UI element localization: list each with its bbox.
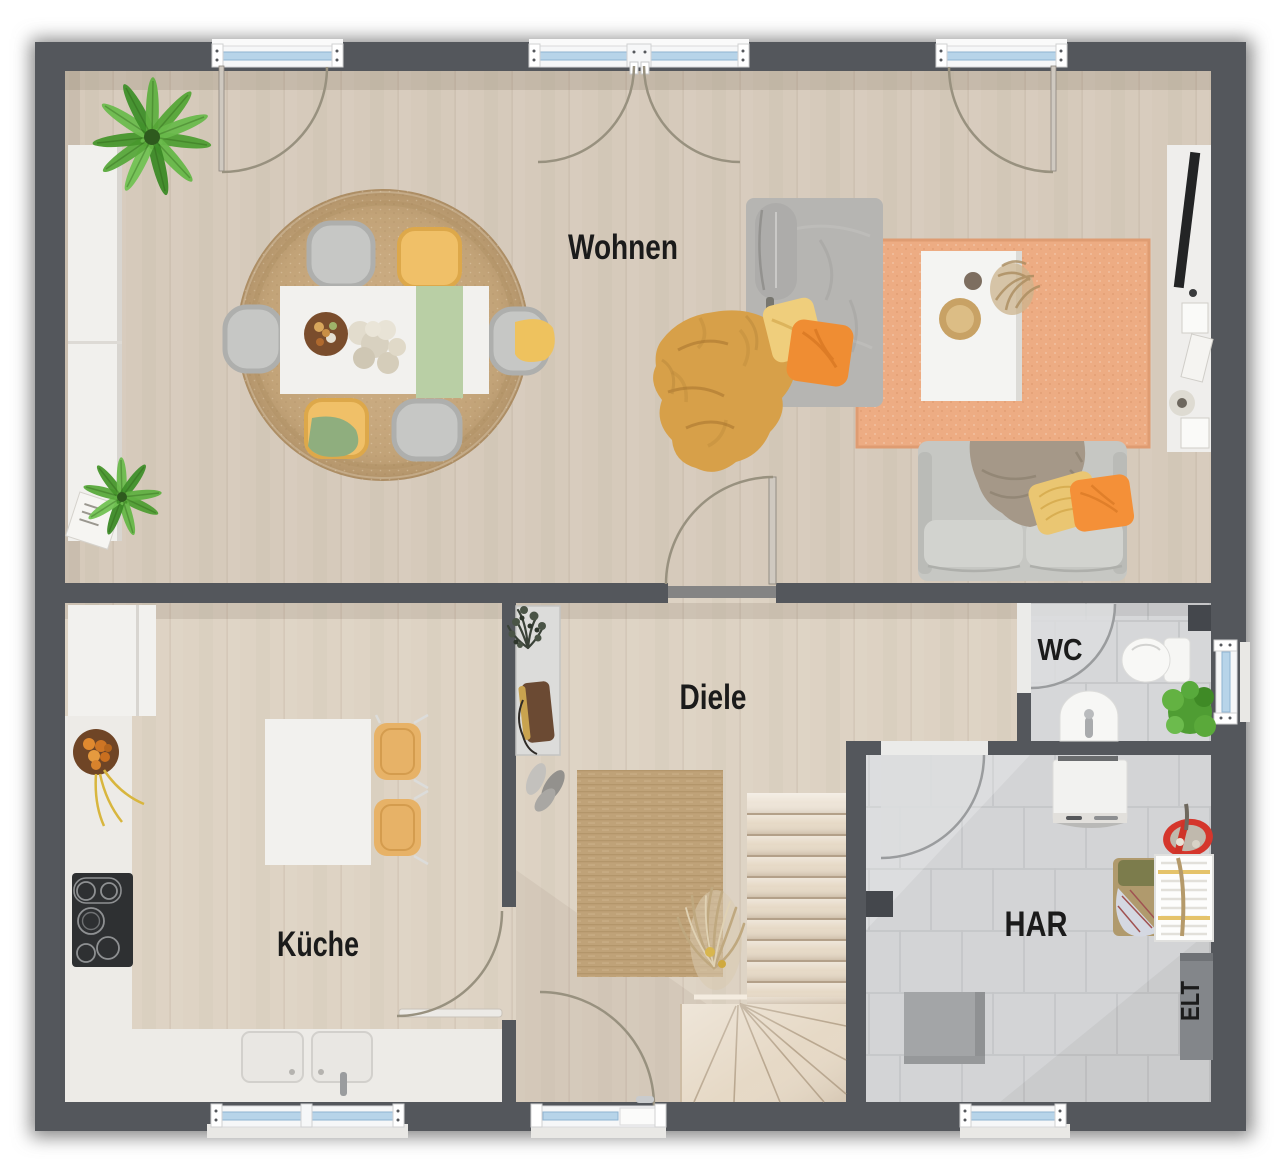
svg-text:ELT: ELT: [1175, 981, 1205, 1021]
svg-text:Wohnen: Wohnen: [568, 228, 678, 267]
svg-text:HAR: HAR: [1005, 905, 1068, 944]
svg-text:Diele: Diele: [680, 678, 747, 717]
svg-text:Küche: Küche: [277, 925, 359, 964]
svg-text:WC: WC: [1038, 632, 1083, 667]
